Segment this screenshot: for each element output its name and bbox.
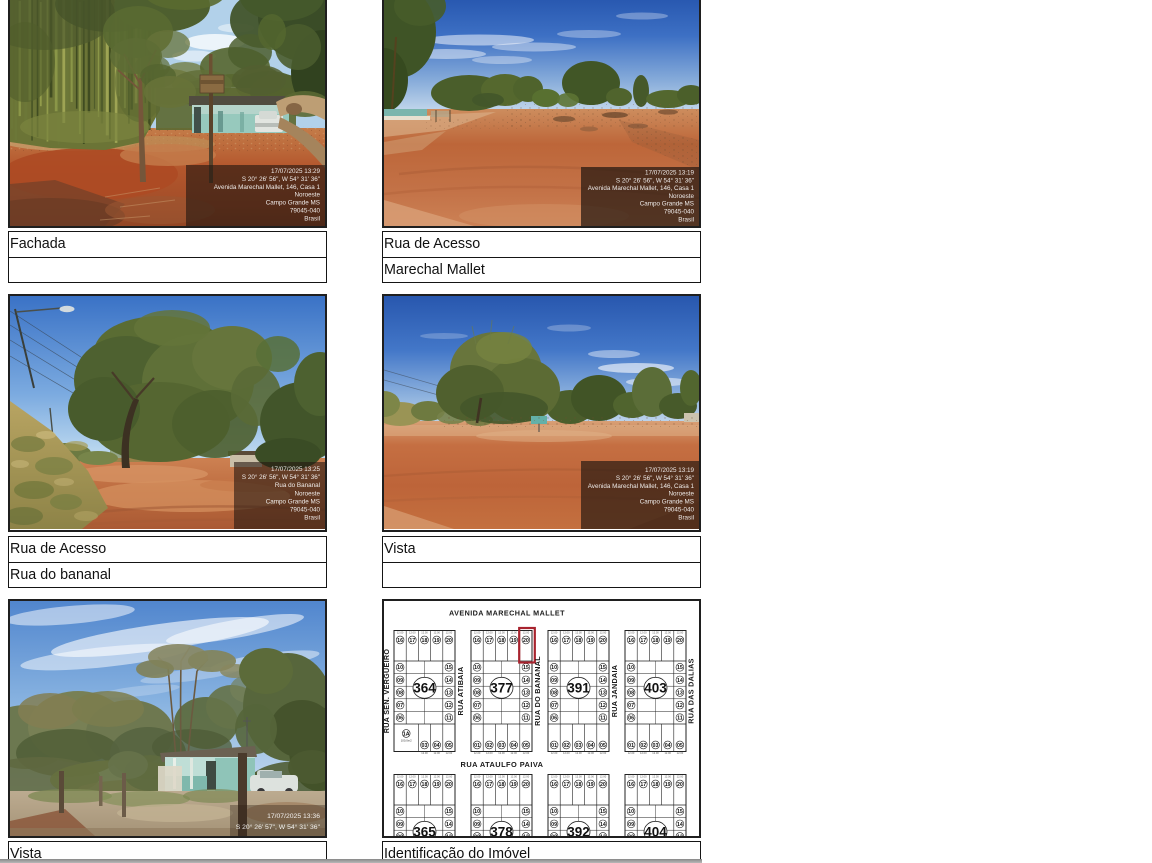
svg-text:14: 14 — [600, 678, 606, 684]
svg-text:04: 04 — [511, 743, 517, 749]
svg-text:12.00: 12.00 — [575, 751, 582, 755]
svg-text:79045-040: 79045-040 — [664, 209, 695, 216]
svg-text:S 20° 26' 56", W 54° 31' 36": S 20° 26' 56", W 54° 31' 36" — [616, 176, 694, 184]
svg-text:12.00: 12.00 — [446, 631, 453, 635]
svg-text:14: 14 — [523, 822, 529, 828]
svg-text:12.00: 12.00 — [397, 631, 404, 635]
svg-text:12.00: 12.00 — [433, 775, 440, 779]
svg-text:12: 12 — [677, 703, 683, 709]
svg-text:12.00: 12.00 — [628, 775, 635, 779]
svg-text:12.00: 12.00 — [498, 775, 505, 779]
svg-text:02: 02 — [486, 743, 492, 749]
svg-text:12.00: 12.00 — [652, 631, 659, 635]
svg-text:14: 14 — [677, 678, 683, 684]
svg-text:15: 15 — [523, 809, 529, 815]
svg-text:14: 14 — [523, 678, 529, 684]
svg-text:12.00: 12.00 — [587, 751, 594, 755]
svg-text:09: 09 — [628, 678, 634, 684]
svg-text:RUA ATIBAIA: RUA ATIBAIA — [456, 667, 465, 716]
svg-text:12.00: 12.00 — [523, 631, 530, 635]
svg-text:01: 01 — [474, 743, 480, 749]
svg-text:12.00: 12.00 — [510, 631, 517, 635]
svg-text:12.00: 12.00 — [523, 775, 530, 779]
svg-text:12.00: 12.00 — [677, 631, 684, 635]
svg-text:09: 09 — [628, 822, 634, 828]
svg-text:12.00: 12.00 — [498, 751, 505, 755]
svg-text:13: 13 — [446, 834, 452, 836]
svg-text:18: 18 — [422, 782, 428, 788]
svg-text:20: 20 — [523, 638, 529, 644]
svg-text:01: 01 — [628, 743, 634, 749]
svg-text:12.00: 12.00 — [575, 775, 582, 779]
svg-text:19: 19 — [665, 782, 671, 788]
svg-text:12.00: 12.00 — [664, 631, 671, 635]
svg-text:19: 19 — [434, 638, 440, 644]
svg-text:09: 09 — [397, 822, 403, 828]
svg-text:03: 03 — [422, 743, 428, 749]
svg-text:12.00: 12.00 — [677, 775, 684, 779]
svg-text:10: 10 — [397, 665, 403, 671]
svg-text:17/07/2025 13:36: 17/07/2025 13:36 — [267, 813, 320, 820]
svg-text:12.00: 12.00 — [486, 751, 493, 755]
svg-text:02: 02 — [640, 743, 646, 749]
svg-text:Avenida Marechal Mallet, 146,: Avenida Marechal Mallet, 146, Casa 1 — [214, 184, 321, 191]
svg-text:06: 06 — [474, 716, 480, 722]
svg-text:04: 04 — [588, 743, 594, 749]
svg-text:13: 13 — [523, 691, 529, 697]
svg-text:10: 10 — [628, 665, 634, 671]
svg-text:16: 16 — [397, 638, 403, 644]
svg-text:12.00: 12.00 — [587, 631, 594, 635]
svg-text:11: 11 — [600, 716, 606, 722]
svg-text:Noroeste: Noroeste — [294, 192, 320, 199]
svg-text:392: 392 — [567, 825, 590, 836]
svg-text:17/07/2025 13:19: 17/07/2025 13:19 — [645, 467, 695, 474]
svg-text:08: 08 — [551, 834, 557, 836]
svg-text:15: 15 — [600, 665, 606, 671]
svg-text:17: 17 — [409, 782, 415, 788]
svg-text:01: 01 — [551, 743, 557, 749]
svg-text:13: 13 — [446, 691, 452, 697]
svg-text:364: 364 — [413, 681, 436, 696]
svg-text:12.00: 12.00 — [563, 751, 570, 755]
svg-text:12.00: 12.00 — [551, 631, 558, 635]
svg-text:Campo Grande MS: Campo Grande MS — [640, 499, 694, 506]
svg-text:15: 15 — [446, 809, 452, 815]
svg-text:15: 15 — [677, 665, 683, 671]
svg-text:12.00: 12.00 — [409, 631, 416, 635]
svg-text:08: 08 — [397, 691, 403, 697]
svg-text:06: 06 — [628, 716, 634, 722]
svg-text:12.00: 12.00 — [563, 775, 570, 779]
svg-text:12.00: 12.00 — [474, 775, 481, 779]
svg-text:20: 20 — [677, 638, 683, 644]
svg-text:12.00: 12.00 — [409, 775, 416, 779]
svg-text:12.00: 12.00 — [433, 631, 440, 635]
svg-text:13: 13 — [677, 691, 683, 697]
svg-text:12.00: 12.00 — [421, 631, 428, 635]
svg-text:12: 12 — [523, 703, 529, 709]
svg-text:18: 18 — [499, 638, 505, 644]
svg-text:12.00: 12.00 — [640, 775, 647, 779]
svg-text:20: 20 — [677, 782, 683, 788]
svg-text:03: 03 — [653, 743, 659, 749]
svg-text:07: 07 — [551, 703, 557, 709]
svg-text:Rua do Bananal: Rua do Bananal — [275, 482, 320, 489]
svg-text:14: 14 — [446, 678, 452, 684]
svg-text:12.00: 12.00 — [652, 775, 659, 779]
svg-text:12.00: 12.00 — [498, 631, 505, 635]
svg-text:12.00: 12.00 — [628, 751, 635, 755]
svg-text:13: 13 — [523, 834, 529, 836]
svg-text:03: 03 — [499, 743, 505, 749]
svg-text:12.00: 12.00 — [600, 751, 607, 755]
svg-text:19: 19 — [434, 782, 440, 788]
svg-text:Noroeste: Noroeste — [668, 193, 694, 200]
svg-text:11: 11 — [677, 716, 683, 722]
svg-text:Noroeste: Noroeste — [668, 491, 694, 498]
svg-text:17: 17 — [563, 782, 569, 788]
svg-text:03: 03 — [576, 743, 582, 749]
svg-text:05: 05 — [677, 743, 683, 749]
svg-text:16: 16 — [628, 638, 634, 644]
svg-text:404: 404 — [644, 825, 667, 836]
svg-text:12.00: 12.00 — [677, 751, 684, 755]
svg-text:18: 18 — [653, 782, 659, 788]
svg-text:12.00: 12.00 — [600, 775, 607, 779]
svg-text:12.00: 12.00 — [486, 631, 493, 635]
svg-text:12.00: 12.00 — [664, 751, 671, 755]
svg-text:12.00: 12.00 — [640, 751, 647, 755]
svg-text:10: 10 — [474, 809, 480, 815]
svg-text:Brasil: Brasil — [678, 514, 694, 521]
svg-text:RUA ATAULFO PAIVA: RUA ATAULFO PAIVA — [461, 760, 544, 769]
svg-text:12.00: 12.00 — [563, 631, 570, 635]
svg-text:S 20° 26' 56", W 54° 31' 36": S 20° 26' 56", W 54° 31' 36" — [616, 474, 694, 482]
svg-text:08: 08 — [628, 834, 634, 836]
svg-text:RUA JANDAIA: RUA JANDAIA — [610, 665, 619, 718]
svg-text:Brasil: Brasil — [678, 216, 694, 223]
svg-text:19: 19 — [588, 638, 594, 644]
svg-text:12.00: 12.00 — [510, 775, 517, 779]
svg-text:17: 17 — [486, 638, 492, 644]
svg-text:Avenida Marechal Mallet, 146,: Avenida Marechal Mallet, 146, Casa 1 — [588, 185, 695, 192]
svg-text:12.00: 12.00 — [664, 775, 671, 779]
svg-text:12.00: 12.00 — [523, 751, 530, 755]
svg-text:365: 365 — [413, 825, 436, 836]
svg-text:12: 12 — [600, 703, 606, 709]
svg-text:02: 02 — [563, 743, 569, 749]
svg-text:19: 19 — [511, 782, 517, 788]
svg-text:07: 07 — [628, 703, 634, 709]
svg-text:17: 17 — [640, 638, 646, 644]
svg-text:04: 04 — [434, 743, 440, 749]
svg-text:12.00: 12.00 — [474, 751, 481, 755]
svg-text:377: 377 — [490, 681, 513, 696]
svg-text:S 20° 26' 57", W 54° 31' 36": S 20° 26' 57", W 54° 31' 36" — [236, 823, 321, 831]
svg-text:RUA DAS DALIAS: RUA DAS DALIAS — [687, 658, 696, 723]
svg-text:RUA SEN. VERGUEIRO: RUA SEN. VERGUEIRO — [384, 649, 391, 734]
svg-text:17/07/2025 13:25: 17/07/2025 13:25 — [271, 466, 321, 473]
svg-text:AVENIDA MARECHAL MALLET: AVENIDA MARECHAL MALLET — [449, 609, 565, 618]
svg-text:12.00: 12.00 — [551, 775, 558, 779]
svg-text:16: 16 — [474, 638, 480, 644]
svg-text:Avenida Marechal Mallet, 146,: Avenida Marechal Mallet, 146, Casa 1 — [588, 483, 695, 490]
svg-text:09: 09 — [474, 822, 480, 828]
svg-text:16: 16 — [397, 782, 403, 788]
svg-text:12.00: 12.00 — [587, 775, 594, 779]
svg-text:12.00: 12.00 — [474, 631, 481, 635]
svg-text:05: 05 — [600, 743, 606, 749]
svg-text:14: 14 — [600, 822, 606, 828]
svg-text:11: 11 — [523, 716, 529, 722]
svg-text:18: 18 — [576, 638, 582, 644]
svg-text:20: 20 — [600, 782, 606, 788]
svg-text:19: 19 — [588, 782, 594, 788]
svg-text:12: 12 — [446, 703, 452, 709]
svg-text:05: 05 — [523, 743, 529, 749]
svg-text:09: 09 — [397, 678, 403, 684]
svg-text:10: 10 — [397, 809, 403, 815]
svg-text:14: 14 — [677, 822, 683, 828]
svg-text:79045-040: 79045-040 — [664, 507, 695, 514]
svg-text:20: 20 — [446, 782, 452, 788]
svg-text:12.00: 12.00 — [486, 775, 493, 779]
svg-text:20: 20 — [446, 638, 452, 644]
svg-text:12.00: 12.00 — [652, 751, 659, 755]
svg-text:06: 06 — [551, 716, 557, 722]
svg-text:17/07/2025 13:19: 17/07/2025 13:19 — [645, 170, 695, 177]
svg-text:100,0m2: 100,0m2 — [401, 739, 412, 743]
svg-text:12.00: 12.00 — [446, 751, 453, 755]
svg-text:16: 16 — [551, 638, 557, 644]
svg-text:15: 15 — [523, 665, 529, 671]
svg-text:10: 10 — [551, 809, 557, 815]
svg-text:17/07/2025 13:29: 17/07/2025 13:29 — [271, 168, 321, 175]
svg-text:20: 20 — [600, 638, 606, 644]
svg-text:Noroeste: Noroeste — [294, 490, 320, 497]
svg-text:20: 20 — [523, 782, 529, 788]
svg-text:79045-040: 79045-040 — [290, 507, 321, 514]
svg-text:12.00: 12.00 — [575, 631, 582, 635]
svg-text:11: 11 — [446, 716, 452, 722]
svg-text:RUA DO BANANAL: RUA DO BANANAL — [533, 656, 542, 726]
svg-text:Campo Grande MS: Campo Grande MS — [266, 200, 320, 207]
svg-text:16: 16 — [551, 782, 557, 788]
svg-text:12.00: 12.00 — [551, 751, 558, 755]
svg-text:10: 10 — [474, 665, 480, 671]
svg-text:08: 08 — [474, 691, 480, 697]
svg-text:S 20° 26' 56", W 54° 31' 36": S 20° 26' 56", W 54° 31' 36" — [242, 473, 320, 481]
svg-text:08: 08 — [628, 691, 634, 697]
svg-text:12.00: 12.00 — [446, 775, 453, 779]
svg-text:09: 09 — [474, 678, 480, 684]
svg-text:08: 08 — [474, 834, 480, 836]
svg-text:403: 403 — [644, 681, 667, 696]
svg-text:Campo Grande MS: Campo Grande MS — [266, 498, 320, 505]
svg-text:12.00: 12.00 — [628, 631, 635, 635]
svg-text:17: 17 — [486, 782, 492, 788]
svg-text:13: 13 — [600, 834, 606, 836]
svg-text:18: 18 — [653, 638, 659, 644]
svg-text:07: 07 — [397, 703, 403, 709]
svg-text:12.00: 12.00 — [600, 631, 607, 635]
svg-text:18: 18 — [422, 638, 428, 644]
svg-text:79045-040: 79045-040 — [290, 208, 321, 215]
svg-text:09: 09 — [551, 678, 557, 684]
svg-text:391: 391 — [567, 681, 590, 696]
svg-text:17: 17 — [563, 638, 569, 644]
svg-text:14: 14 — [446, 822, 452, 828]
svg-text:Brasil: Brasil — [304, 515, 320, 522]
svg-text:09: 09 — [551, 822, 557, 828]
svg-text:17: 17 — [409, 638, 415, 644]
svg-text:12.00: 12.00 — [397, 775, 404, 779]
svg-text:16: 16 — [474, 782, 480, 788]
svg-text:15: 15 — [446, 665, 452, 671]
svg-text:08: 08 — [551, 691, 557, 697]
svg-text:05: 05 — [446, 743, 452, 749]
svg-text:04: 04 — [665, 743, 671, 749]
svg-text:18: 18 — [499, 782, 505, 788]
svg-text:378: 378 — [490, 825, 513, 836]
svg-text:10: 10 — [551, 665, 557, 671]
svg-text:12.00: 12.00 — [640, 631, 647, 635]
svg-text:S 20° 26' 56", W 54° 31' 36": S 20° 26' 56", W 54° 31' 36" — [242, 175, 320, 183]
svg-text:1A: 1A — [403, 731, 410, 737]
svg-text:16: 16 — [628, 782, 634, 788]
svg-text:12.00: 12.00 — [421, 751, 428, 755]
svg-text:12.00: 12.00 — [433, 751, 440, 755]
svg-text:15: 15 — [600, 809, 606, 815]
svg-text:19: 19 — [511, 638, 517, 644]
svg-text:06: 06 — [397, 716, 403, 722]
svg-text:13: 13 — [677, 834, 683, 836]
svg-text:12.00: 12.00 — [510, 751, 517, 755]
svg-text:Campo Grande MS: Campo Grande MS — [640, 201, 694, 208]
svg-text:Brasil: Brasil — [304, 215, 320, 222]
svg-text:17: 17 — [640, 782, 646, 788]
svg-text:19: 19 — [665, 638, 671, 644]
svg-text:13: 13 — [600, 691, 606, 697]
svg-text:18: 18 — [576, 782, 582, 788]
svg-text:10: 10 — [628, 809, 634, 815]
svg-text:08: 08 — [397, 834, 403, 836]
svg-text:15: 15 — [677, 809, 683, 815]
svg-text:12.00: 12.00 — [421, 775, 428, 779]
svg-text:07: 07 — [474, 703, 480, 709]
